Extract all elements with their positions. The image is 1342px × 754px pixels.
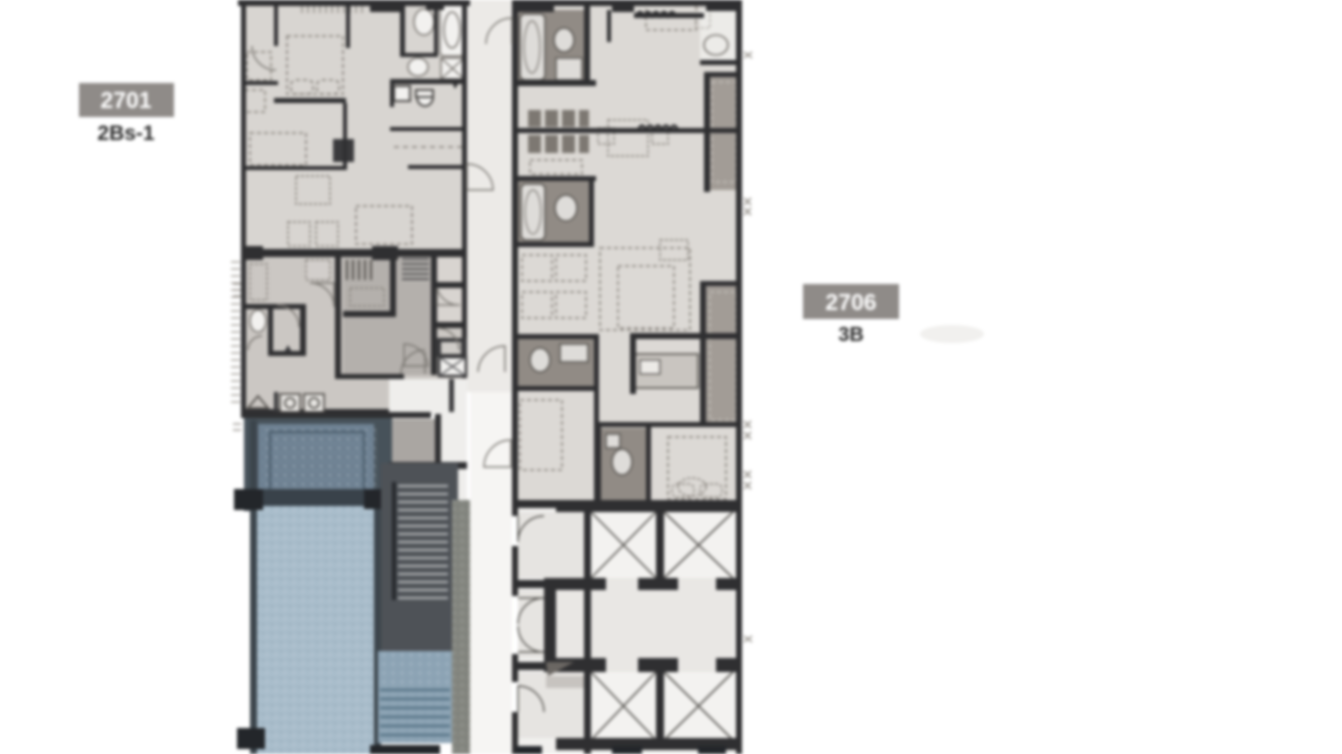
svg-text:3B: 3B [838,324,864,346]
svg-text:2Bs-1: 2Bs-1 [97,122,155,145]
svg-text:2701: 2701 [100,87,151,113]
svg-text:2706: 2706 [825,289,876,315]
